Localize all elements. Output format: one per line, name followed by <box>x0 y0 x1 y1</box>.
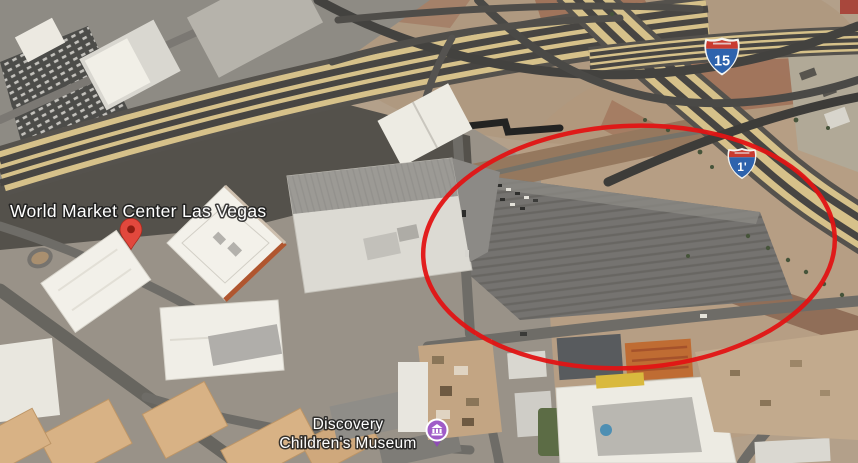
shield-number-small: 1' <box>737 160 747 174</box>
satellite-map[interactable]: 15 1' World Market Center Las Vegas Disc… <box>0 0 858 463</box>
place-label-museum-line1[interactable]: Discovery <box>313 416 384 433</box>
red-roof-building <box>840 0 858 14</box>
place-label-world-market-center[interactable]: World Market Center Las Vegas <box>10 201 266 221</box>
interstate-word <box>735 152 750 153</box>
swimming-pool <box>600 424 612 436</box>
interstate-word <box>713 43 731 45</box>
map-viewport[interactable]: 15 1' World Market Center Las Vegas Disc… <box>0 0 858 463</box>
pin-dot <box>127 225 135 233</box>
shield-number: 15 <box>714 54 730 70</box>
place-label-museum-line2[interactable]: Children's Museum <box>279 435 416 452</box>
